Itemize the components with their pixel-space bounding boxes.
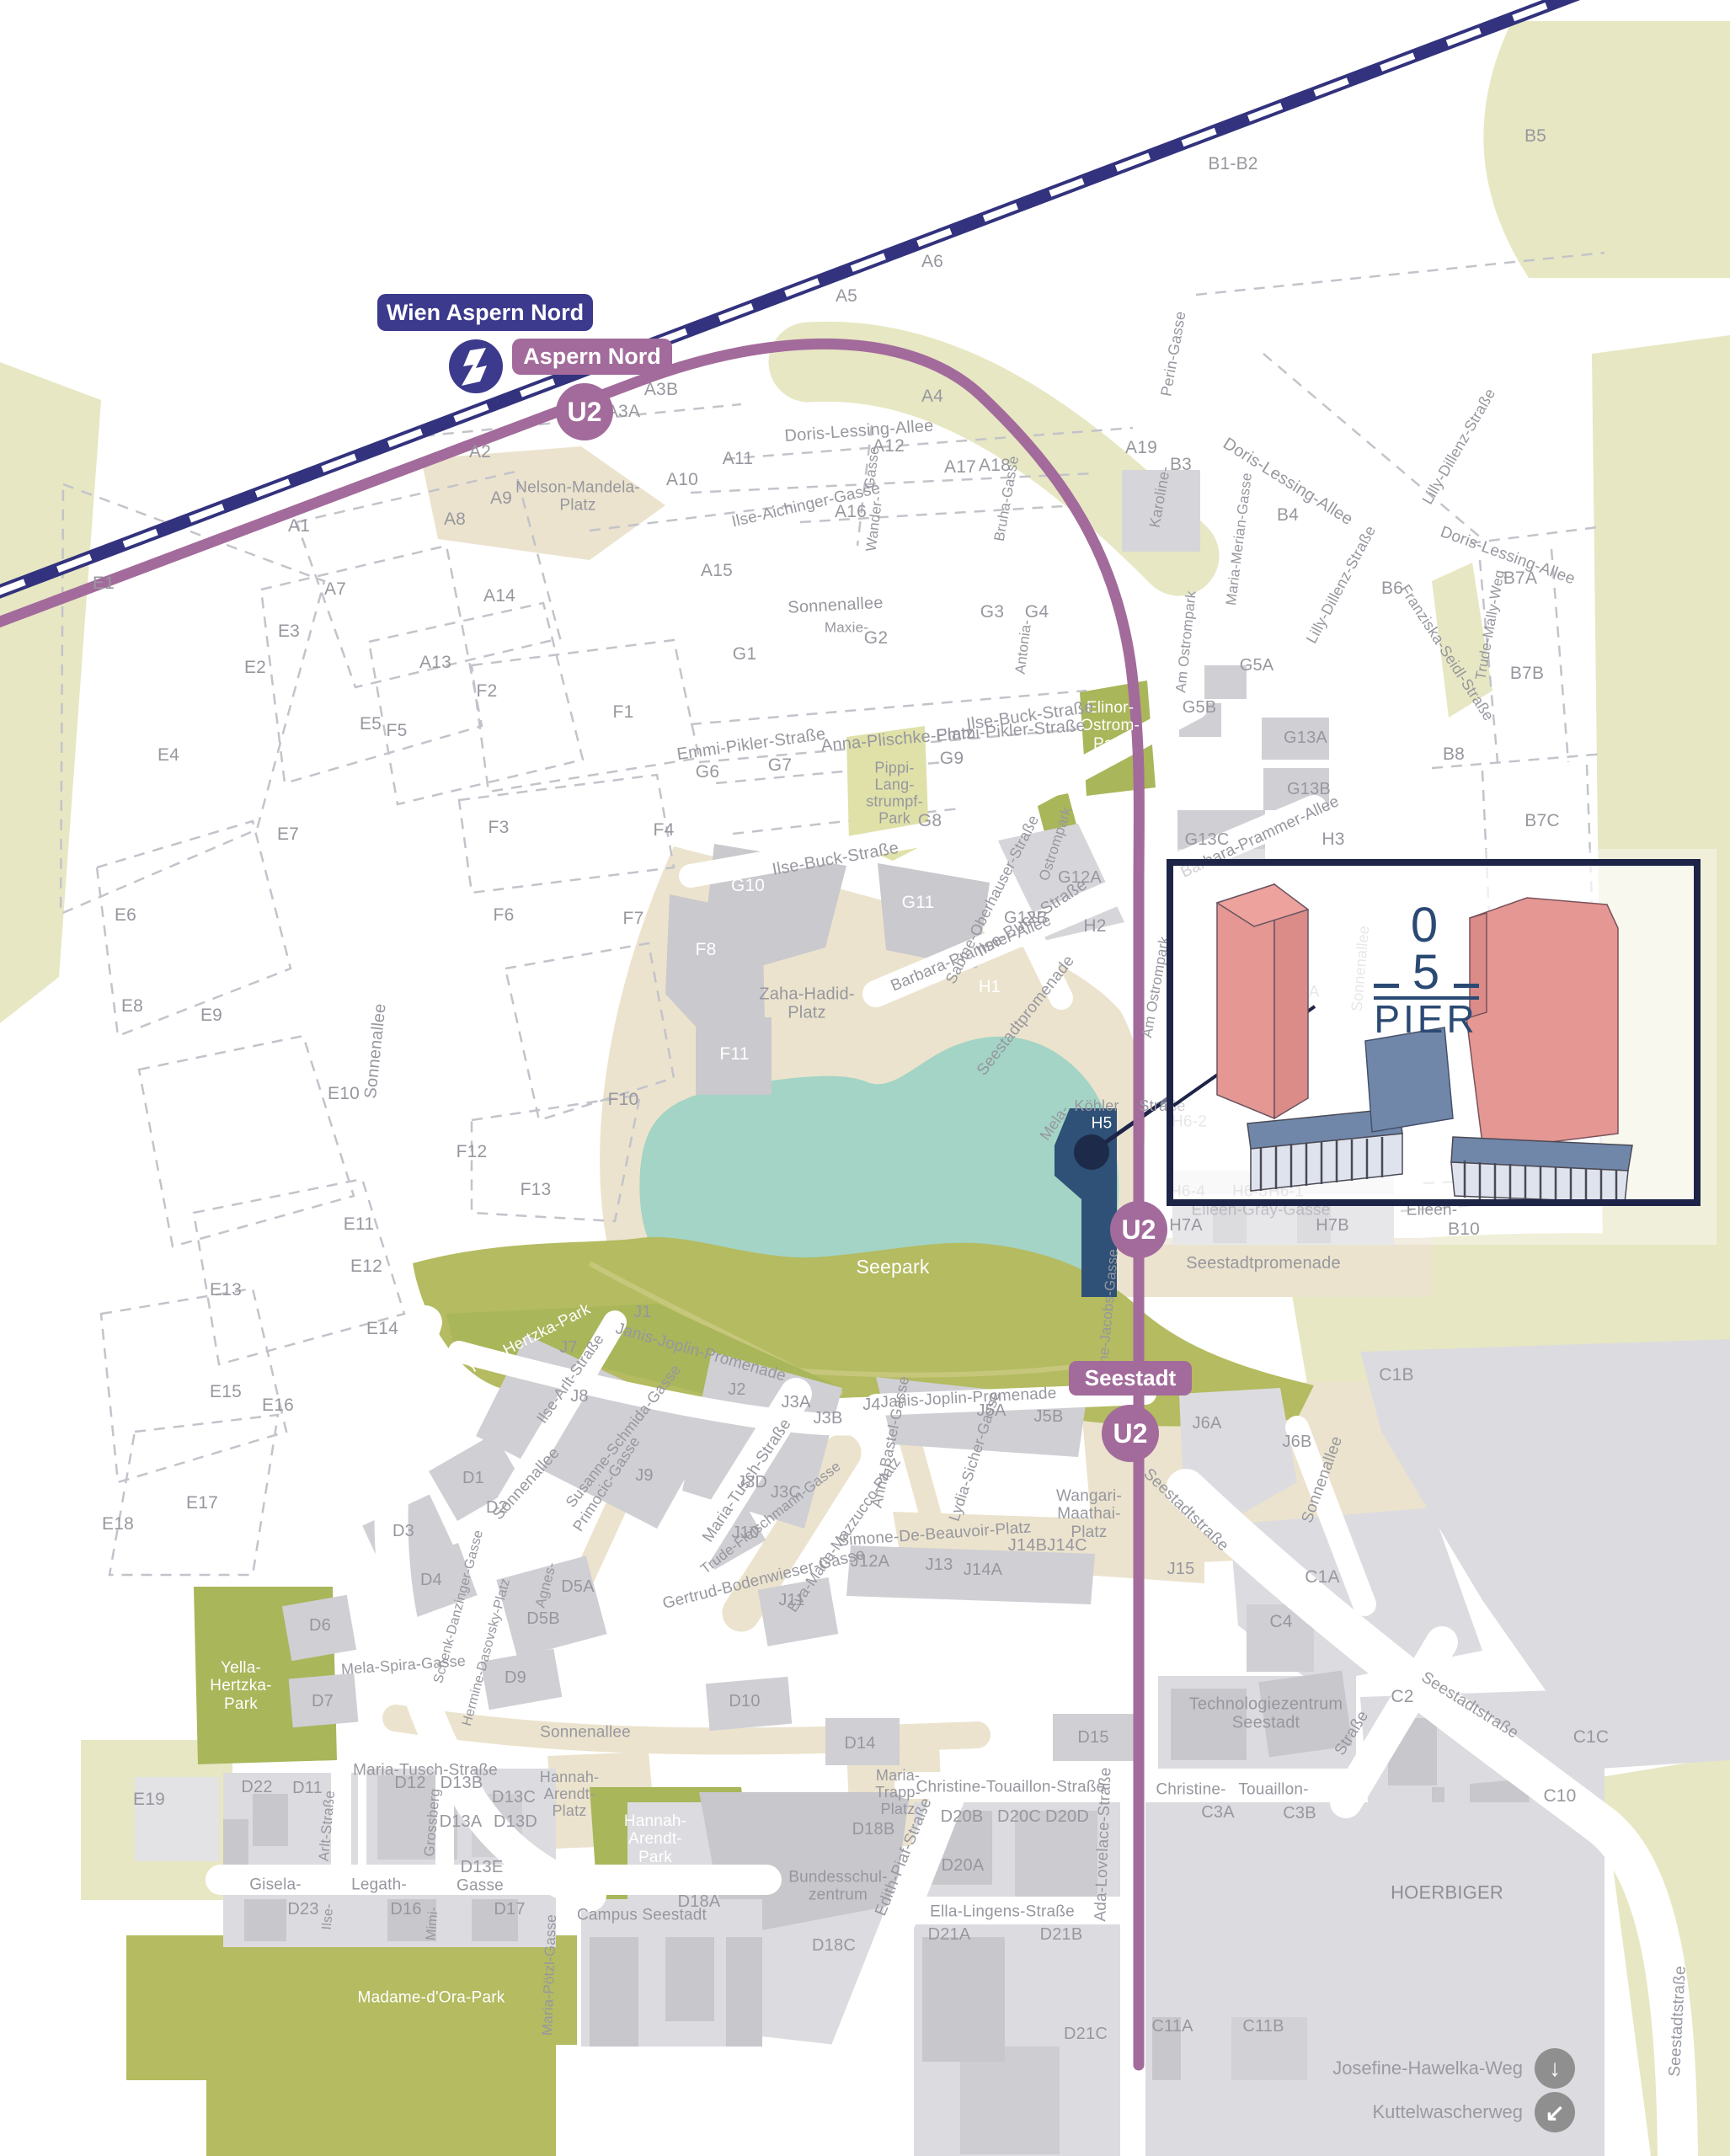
map-label: Christine- [1156,1780,1225,1798]
map-label: C1C [1573,1727,1610,1748]
seestadt-station-badge: Seestadt [1069,1361,1192,1396]
map-label: Mela- [1037,1102,1073,1143]
map-label: D5B [526,1609,560,1628]
map-label: Perin-Gasse [1157,310,1189,398]
map-label: E5 [360,714,382,734]
map-label: E15 [210,1382,242,1402]
map-label: D3 [392,1522,414,1540]
map-label: Maria-Pötzl-Gasse [539,1914,559,2036]
map-label: G5B [1183,698,1217,717]
map-label: G2 [864,628,888,648]
map-label: D10 [729,1692,760,1710]
map-label: Hannah- Arendt- Platz [540,1769,599,1819]
map-label: A5 [836,286,857,307]
map-label: D20A [942,1856,985,1875]
map-label: J13 [926,1556,953,1574]
map-label: Seestadtstraße [1666,1966,1690,2078]
map-label: G6 [696,762,719,782]
sbahn-logo-icon [449,339,503,393]
map-label: J2 [728,1380,746,1399]
map-label: Legath- [351,1876,407,1893]
map-label: A16 [835,502,867,522]
map-label: E14 [366,1319,398,1339]
map-label: B7C [1524,811,1559,831]
map-label: Lydia-Sicher-Gasse [946,1389,1004,1523]
map-label: A10 [666,470,698,490]
map-label: Sonnenallee [540,1723,631,1741]
map-label: E6 [115,905,136,926]
map-label: J12A [851,1552,889,1571]
map-label: D4 [420,1571,442,1589]
map-label: J4 [862,1396,881,1414]
map-label: Campus Seestadt [577,1906,707,1924]
map-label: A4 [921,387,943,407]
map-label: Christine-Touaillon-Straße [916,1778,1106,1796]
map-label: A14 [483,586,515,606]
map-label: Emmi-Pikler-Straße [675,725,826,765]
map-label: J8 [570,1387,589,1406]
map-label: D21B [1040,1925,1083,1944]
map-label: D13C [492,1788,536,1806]
map-label: Lilly-Dillenz-Straße [1303,523,1380,646]
map-label: J3B [813,1409,842,1428]
map-label: Janis-Joplin-Promenade [613,1320,788,1385]
u2-badge-seestadt: U2 [1102,1405,1159,1462]
map-label: E1 [93,574,115,594]
map-label: F11 [719,1044,749,1065]
map-label: H7B [1316,1216,1349,1235]
map-label: Technologiezentrum Seestadt [1189,1695,1343,1733]
map-label: F8 [696,940,717,960]
map-label: A19 [1125,438,1157,458]
map-label: D9 [505,1668,526,1687]
map-label: Maria- Trapp- Platz [875,1767,921,1817]
podium-right [1451,1137,1632,1199]
map-label: C4 [1269,1612,1292,1632]
map-label: Madame-d'Ora-Park [358,1988,505,2006]
tower-left [1217,884,1308,1118]
map-label: F13 [521,1180,552,1200]
map-label: J6A [1192,1414,1221,1433]
map-label: G5A [1240,656,1274,675]
map-label: A17 [944,457,976,478]
map-label: Yella- Hertzka- Park [210,1659,271,1713]
map-label: Sonnenallee [788,594,884,617]
map-label: H7A [1169,1216,1203,1235]
map-label: C2 [1391,1687,1413,1707]
map-label: G7 [768,755,792,776]
map-label: Seestadtpromenade [974,953,1078,1080]
map-label: Grossberg [421,1788,443,1858]
map-label: B10 [1448,1219,1480,1240]
map-label: E3 [278,622,300,642]
map-label: J5B [1033,1407,1063,1426]
map-label: J6B [1282,1433,1311,1451]
map-label: Susanne-Schmida-Gasse [563,1361,685,1510]
map-label: D17 [494,1900,525,1919]
map-label: D23 [287,1900,318,1919]
map-label: E11 [344,1214,374,1235]
map-label: C3A [1201,1803,1235,1822]
map-label: H1 [979,978,1001,996]
map-label: C10 [1543,1786,1576,1806]
u2-badge-aspern-nord: U2 [556,383,613,440]
map-label: F2 [477,681,498,702]
map-label: Maria-Tusch-Straße [353,1761,498,1779]
map-label: G12B [1004,909,1048,927]
map-label: C11B [1242,2017,1284,2036]
map-label: D13D [494,1812,537,1831]
map-label: Trude-Mally-Weg [1472,568,1508,681]
map-label: Am Ostrompark [1172,590,1199,694]
logo-five: 5 [1412,945,1439,1000]
map-label: E13 [210,1280,242,1300]
map-label: J1 [633,1303,652,1321]
map-label: F6 [494,905,515,926]
map-label: F5 [387,721,408,741]
map-label: D13E [461,1858,504,1876]
map-label: H3 [1322,830,1344,850]
map-label: Seepark [856,1257,929,1278]
map-label: E7 [277,825,299,845]
map-label: B4 [1277,505,1299,526]
map-label: Karoline- [1146,465,1174,529]
map-label: B8 [1443,744,1465,765]
logo-pier: PIER [1374,997,1477,1041]
map-label: E16 [262,1396,294,1416]
map-label: Bundesschul- zentrum [788,1869,888,1905]
map-label: C1B [1379,1365,1413,1385]
map-label: D14 [844,1734,875,1753]
map-label: G8 [918,811,942,831]
map-label: A3B [644,380,678,400]
map-label: D13A [440,1812,483,1831]
map-label: Agnes- [532,1561,560,1609]
map-label: A7 [324,579,346,600]
legend-row: Josefine-Hawelka-Weg ↓ [1297,2052,1575,2085]
map-label: F3 [489,818,510,838]
map-label: D21C [1064,2025,1108,2043]
map-label: F12 [457,1142,488,1162]
map-label: Jane-Jacobs-Gasse [1094,1248,1121,1380]
map-label: A15 [701,561,733,581]
map-label: H5 [1092,1114,1113,1132]
map-label: Touaillon- [1238,1780,1308,1798]
map-label: Seestadtstraße [1140,1465,1231,1556]
map-label: Arlt-Straße [316,1790,338,1862]
map-label: E18 [102,1514,134,1534]
aspern-nord-station-badge: Aspern Nord [512,339,672,375]
map-label: D2 [486,1498,508,1517]
map-label: E17 [186,1493,218,1513]
map-label: J14A [964,1561,1002,1579]
map-label: Seestadtpromenade [1186,1254,1341,1273]
map-label: D15 [1077,1728,1108,1747]
map-label: B5 [1524,126,1546,147]
map-label: Nelson-Mandela- Platz [515,479,640,515]
map-label: B7B [1510,664,1544,684]
map-label: D18C [812,1936,856,1955]
map-label: Pippi- Lang- strumpf- Park [866,760,923,828]
map-label: D11 [292,1779,323,1797]
map-label: Zaha-Hadid- Platz [759,985,854,1023]
legend-label: Kuttelwascherweg [1372,2101,1523,2123]
map-label: A11 [723,449,753,469]
map-label: F1 [613,702,634,723]
map-label: D21A [928,1925,971,1944]
map-label: Ilse- [320,1903,338,1931]
map-label: Simone-De-Beauvoir-Platz [838,1518,1033,1550]
map-label: F7 [623,909,644,929]
map-label: A6 [921,252,943,272]
map-label: A13 [419,653,451,673]
down-arrow-icon: ↓ [1535,2048,1575,2089]
map-label: C3B [1283,1804,1316,1822]
map-label: G13B [1287,780,1331,798]
map-label: E2 [244,658,266,678]
map-label: Ilse-Buck-Straße [771,839,900,879]
map-label: A1 [288,516,310,536]
map-label: Köhler [1074,1097,1119,1114]
map-label: E12 [350,1257,382,1277]
map-label: D18B [852,1820,895,1838]
map-label: Sonnenallee [361,1002,390,1099]
map-label: G4 [1025,602,1049,622]
map-label: E19 [133,1790,165,1810]
map-label: Maria-Merian-Gasse [1223,472,1255,606]
map-label: Gisela- [249,1876,302,1893]
map-label: Hannah- Arendt- Park [624,1812,686,1866]
legend: Josefine-Hawelka-Weg ↓ Kuttelwascherweg … [1297,2052,1575,2139]
map-label: D20B [941,1807,984,1826]
map-label: Maxie- [825,619,868,635]
map-label: B1-B2 [1208,154,1257,174]
map-label: D20D [1045,1807,1089,1826]
map-label: J3A [781,1393,810,1412]
map-label: D20C [997,1807,1041,1826]
map-label: A9 [490,488,512,509]
map-label: F4 [654,820,675,841]
map-label: Ella-Lingens-Straße [930,1903,1075,1920]
map-label: J9 [635,1466,654,1485]
map-label: G10 [731,876,765,896]
map-label: J14B [1008,1536,1047,1555]
building-center-blue [1365,1027,1453,1132]
map-label: Seestadtstraße [1418,1668,1522,1742]
map-label: B7A [1503,568,1537,589]
map-label: Antonia- [1012,619,1035,675]
map-label: Wangari- Maathai- Platz [1056,1487,1122,1541]
map-label: G9 [940,749,964,769]
pier05-render: 0 5 PIER [1173,866,1694,1199]
map-label: E4 [158,745,179,766]
map-label: J7 [559,1338,578,1357]
map-label: G3 [980,602,1004,622]
seestadt-map: B5B1-B2A6A5Perin-GasseA3BA3AA2A4Doris-Le… [0,0,1730,2156]
map-label: D22 [241,1778,272,1796]
map-label: A8 [444,510,466,530]
map-label: HOERBIGER [1391,1883,1503,1904]
map-label: G12A [1058,868,1102,887]
legend-row: Kuttelwascherweg ↙ [1297,2095,1575,2129]
railway-station-badge: Wien Aspern Nord [377,294,593,331]
map-label: C1A [1305,1567,1339,1588]
pier05-logo: 0 5 PIER [1374,898,1479,1041]
map-label: J15 [1167,1560,1195,1578]
pier05-inset: 0 5 PIER [1167,859,1701,1206]
map-label: D6 [309,1616,331,1635]
map-label: F10 [608,1090,639,1110]
map-label: C11A [1151,2017,1193,2036]
tower-right [1466,898,1618,1150]
map-label: G11 [902,893,935,913]
map-label: D5A [561,1577,595,1596]
map-label: Gasse [862,446,883,489]
map-label: E8 [121,996,143,1017]
map-label: Mimi- [424,1906,441,1941]
map-label: E10 [328,1084,360,1104]
down-left-arrow-icon: ↙ [1535,2092,1575,2132]
u2-badge-mid: U2 [1110,1201,1167,1258]
map-label: G1 [733,644,756,664]
map-label: D1 [462,1469,484,1487]
map-label: Doris-Lessing-Allee [784,417,934,446]
map-label: A2 [469,442,491,462]
map-label: G13A [1284,728,1327,747]
map-label: Gasse [457,1876,504,1894]
map-label: Lilly-Dillenz-Straße [1419,386,1499,507]
map-label: H2 [1083,916,1106,937]
map-label: D7 [312,1692,334,1710]
map-label: D16 [390,1900,421,1919]
map-label: E9 [200,1006,222,1026]
legend-label: Josefine-Hawelka-Weg [1332,2057,1523,2079]
map-label: B3 [1170,455,1192,475]
